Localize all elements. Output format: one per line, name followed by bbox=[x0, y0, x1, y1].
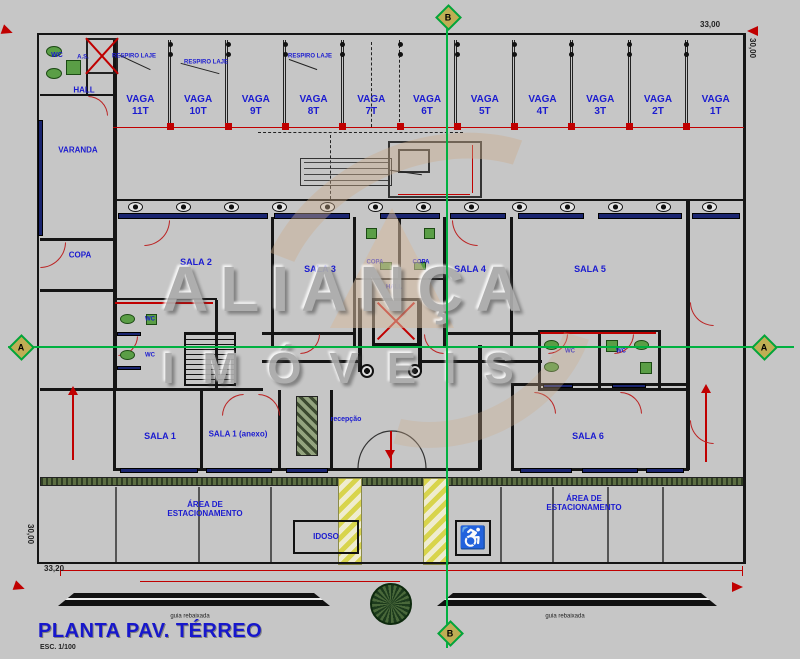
curb-label: guia rebaixada bbox=[545, 614, 584, 621]
bollard-dot-icon bbox=[283, 42, 288, 47]
stall-number: 2T bbox=[652, 106, 664, 117]
wall bbox=[113, 390, 116, 470]
stall-word: VAGA bbox=[299, 94, 327, 105]
room-label-wc-right2: WC bbox=[616, 349, 626, 356]
level-arrow-icon bbox=[747, 26, 758, 36]
stall-word: VAGA bbox=[702, 94, 730, 105]
parking-stall-5t: VAGA5T bbox=[457, 40, 515, 127]
idoso-parking-box: IDOSO bbox=[293, 520, 359, 554]
marker-letter: B bbox=[445, 13, 452, 23]
divider-marker bbox=[568, 123, 575, 130]
column-circle-icon bbox=[702, 202, 717, 212]
section-marker-b-bottom: B bbox=[437, 620, 464, 647]
entrance-arrow-icon bbox=[385, 450, 395, 459]
bollard-dot-icon bbox=[684, 52, 689, 57]
wall bbox=[40, 289, 117, 292]
parking-stall-4t: VAGA4T bbox=[515, 40, 573, 127]
parking-area-line2: ESTACIONAMENTO bbox=[546, 503, 621, 512]
window-bar bbox=[598, 213, 682, 219]
room-label-hall: HALL bbox=[73, 85, 94, 94]
parking-area-line2: ESTACIONAMENTO bbox=[167, 509, 242, 518]
stall-word: VAGA bbox=[242, 94, 270, 105]
divider-marker bbox=[282, 123, 289, 130]
section-marker-a-right: A bbox=[751, 334, 778, 361]
parking-divider bbox=[662, 487, 664, 563]
wall bbox=[37, 33, 744, 35]
flow-arrow-icon bbox=[701, 384, 711, 393]
tree-icon bbox=[370, 583, 412, 625]
parking-area-line1: ÁREA DE bbox=[187, 500, 223, 509]
window-bar bbox=[692, 213, 740, 219]
column-circle-icon bbox=[272, 202, 287, 212]
bollard-dot-icon bbox=[627, 52, 632, 57]
stall-word: VAGA bbox=[413, 94, 441, 105]
wall bbox=[598, 330, 601, 390]
bollard-dot-icon bbox=[569, 52, 574, 57]
section-marker-b-top: B bbox=[435, 4, 462, 31]
divider-marker bbox=[454, 123, 461, 130]
bollard-dot-icon bbox=[512, 42, 517, 47]
stall-number: 10T bbox=[189, 106, 206, 117]
parking-divider bbox=[115, 487, 117, 563]
window-bar bbox=[117, 366, 141, 370]
stall-word: VAGA bbox=[126, 94, 154, 105]
marker-letter: A bbox=[18, 343, 25, 353]
dashed-line bbox=[371, 42, 372, 127]
bollard-dot-icon bbox=[226, 52, 231, 57]
stall-number: 11T bbox=[132, 106, 149, 117]
wall bbox=[40, 388, 117, 391]
stall-number: 9T bbox=[250, 106, 262, 117]
bollard-dot-icon bbox=[455, 42, 460, 47]
room-label-sala6: SALA 6 bbox=[572, 431, 604, 441]
column-circle-icon bbox=[224, 202, 239, 212]
dimension-line bbox=[140, 581, 400, 582]
column-circle-icon bbox=[608, 202, 623, 212]
wall bbox=[200, 390, 203, 470]
plumbing-fixture-icon bbox=[634, 340, 649, 350]
dimension-line bbox=[113, 127, 744, 128]
bollard-dot-icon bbox=[340, 52, 345, 57]
parking-divider bbox=[198, 487, 200, 563]
accessible-parking-box: ♿ bbox=[455, 520, 491, 556]
window-bar bbox=[38, 120, 43, 236]
wall bbox=[686, 199, 690, 470]
wall bbox=[37, 33, 39, 564]
respiro-laje-label: RESPIRO LAJE bbox=[288, 54, 332, 61]
divider-marker bbox=[626, 123, 633, 130]
section-line-b bbox=[446, 10, 448, 648]
level-arrow-icon bbox=[13, 580, 27, 593]
bollard-dot-icon bbox=[569, 42, 574, 47]
column-circle-icon bbox=[128, 202, 143, 212]
room-label-as: A.S. bbox=[77, 55, 89, 62]
plumbing-fixture-icon bbox=[120, 350, 135, 360]
dimension-line bbox=[742, 566, 743, 576]
door-arc bbox=[690, 420, 714, 444]
column-circle-icon bbox=[176, 202, 191, 212]
plumbing-fixture-icon bbox=[640, 362, 652, 374]
window-bar bbox=[646, 468, 684, 473]
stall-number: 3T bbox=[594, 106, 606, 117]
wall bbox=[743, 33, 746, 564]
section-line-a bbox=[8, 346, 794, 348]
room-label-sala1: SALA 1 bbox=[144, 431, 176, 441]
marker-letter: A bbox=[761, 343, 768, 353]
room-label-wc-left2: WC bbox=[145, 353, 155, 360]
bollard-dot-icon bbox=[684, 42, 689, 47]
parking-stall-10t: VAGA10T bbox=[171, 40, 229, 127]
parking-stall-2t: VAGA2T bbox=[631, 40, 689, 127]
room-label-wc: WC bbox=[51, 52, 63, 60]
room-label-sala1-anexo: SALA 1 (anexo) bbox=[209, 429, 268, 438]
wall bbox=[278, 390, 281, 470]
window-bar bbox=[118, 213, 268, 219]
bollard-dot-icon bbox=[398, 42, 403, 47]
plumbing-fixture-icon bbox=[66, 60, 81, 75]
parking-divider bbox=[500, 487, 502, 563]
stall-word: VAGA bbox=[471, 94, 499, 105]
wheelchair-icon: ♿ bbox=[459, 525, 486, 551]
divider-marker bbox=[683, 123, 690, 130]
door-arc bbox=[258, 394, 280, 416]
dimension-line bbox=[72, 392, 74, 460]
stall-word: VAGA bbox=[586, 94, 614, 105]
dim-bottom: 33,20 bbox=[44, 564, 64, 573]
parking-stall-1t: VAGA1T bbox=[688, 40, 743, 127]
stall-word: VAGA bbox=[184, 94, 212, 105]
divider-marker bbox=[397, 123, 404, 130]
parking-area-line1: ÁREA DE bbox=[566, 494, 602, 503]
bollard-dot-icon bbox=[168, 52, 173, 57]
door-arc bbox=[222, 394, 244, 416]
window-bar bbox=[520, 468, 572, 473]
level-arrow-icon bbox=[1, 24, 15, 37]
watermark-alianca: ALIANÇA bbox=[162, 252, 534, 326]
parking-area-label-left: ÁREA DE ESTACIONAMENTO bbox=[167, 500, 242, 518]
parking-stall-6t: VAGA6T bbox=[400, 40, 458, 127]
page-title: PLANTA PAV. TÉRREO bbox=[38, 620, 262, 643]
scale-label: ESC. 1/100 bbox=[40, 644, 76, 651]
window-bar bbox=[120, 468, 198, 473]
divider-marker bbox=[225, 123, 232, 130]
plumbing-fixture-icon bbox=[120, 314, 135, 324]
window-bar bbox=[206, 468, 272, 473]
dimension-line bbox=[60, 570, 743, 571]
stall-number: 8T bbox=[308, 106, 320, 117]
bollard-dot-icon bbox=[512, 52, 517, 57]
parking-area-label-right: ÁREA DE ESTACIONAMENTO bbox=[546, 494, 621, 512]
idoso-label: IDOSO bbox=[313, 532, 339, 541]
sidewalk-curb-bar bbox=[437, 593, 717, 606]
flow-arrow-icon bbox=[68, 386, 78, 395]
dim-left: 30,00 bbox=[26, 524, 35, 544]
dim-top: 33,00 bbox=[700, 20, 720, 29]
dashed-line bbox=[258, 132, 463, 133]
respiro-laje-label: RESPIRO LAJE bbox=[112, 54, 156, 61]
wall bbox=[40, 238, 117, 241]
door-arc bbox=[690, 302, 714, 326]
stall-number: 6T bbox=[421, 106, 433, 117]
dim-right: 30,00 bbox=[748, 38, 757, 58]
floorplan-drawing: VAGA11TVAGA10TVAGA9TVAGA8TVAGA7TVAGA6TVA… bbox=[0, 0, 800, 659]
plumbing-fixture-icon bbox=[46, 68, 62, 79]
window-bar bbox=[582, 468, 638, 473]
divider-marker bbox=[511, 123, 518, 130]
bollard-dot-icon bbox=[627, 42, 632, 47]
parking-divider bbox=[270, 487, 272, 563]
divider-marker bbox=[339, 123, 346, 130]
door-arc bbox=[144, 220, 170, 246]
stall-word: VAGA bbox=[528, 94, 556, 105]
bollard-dot-icon bbox=[455, 52, 460, 57]
respiro-laje-label: RESPIRO LAJE bbox=[184, 60, 228, 67]
bollard-dot-icon bbox=[340, 42, 345, 47]
bollard-dot-icon bbox=[168, 42, 173, 47]
room-label-wc-left1: WC bbox=[145, 317, 155, 324]
watermark-imoveis: IMÓVEIS bbox=[162, 344, 541, 394]
column-circle-icon bbox=[656, 202, 671, 212]
level-arrow-icon bbox=[732, 582, 743, 592]
room-label-varanda: VARANDA bbox=[58, 145, 97, 154]
stall-number: 5T bbox=[479, 106, 491, 117]
window-bar bbox=[286, 468, 328, 473]
bollard-dot-icon bbox=[226, 42, 231, 47]
room-label-copa: COPA bbox=[69, 250, 92, 259]
stall-word: VAGA bbox=[644, 94, 672, 105]
garden-strip bbox=[40, 477, 745, 486]
marker-letter: B bbox=[447, 629, 454, 639]
stall-number: 1T bbox=[710, 106, 722, 117]
wall bbox=[658, 330, 661, 390]
parking-stall-3t: VAGA3T bbox=[573, 40, 631, 127]
parking-stall-9t: VAGA9T bbox=[228, 40, 286, 127]
sidewalk-curb-bar bbox=[58, 593, 330, 606]
wall bbox=[538, 388, 688, 391]
door-arc bbox=[620, 392, 642, 414]
door-arc bbox=[40, 242, 66, 268]
door-arc bbox=[88, 96, 108, 116]
section-marker-a-left: A bbox=[8, 334, 35, 361]
stall-number: 4T bbox=[537, 106, 549, 117]
bollard-dot-icon bbox=[398, 52, 403, 57]
wall bbox=[37, 562, 746, 564]
window-bar bbox=[612, 384, 646, 388]
divider-marker bbox=[167, 123, 174, 130]
parking-row: VAGA11TVAGA10TVAGA9TVAGA8TVAGA7TVAGA6TVA… bbox=[113, 40, 743, 127]
